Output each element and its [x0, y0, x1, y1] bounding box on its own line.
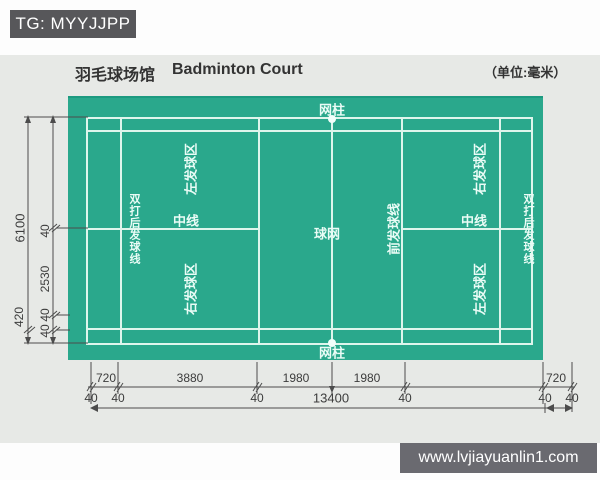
doubles-long-service-line-left: [120, 117, 122, 345]
dim-total-length: 13400: [313, 391, 349, 406]
service-area-label-top-right: 右发球区: [470, 143, 489, 195]
page-title-zh: 羽毛球场馆: [75, 61, 155, 85]
badminton-court: 网柱 网柱 球网 中线 中线 左发球区 右发球区 右发球区 左发球区 双打后发球…: [68, 96, 543, 360]
net-post-label-bottom: 网柱: [319, 343, 345, 362]
short-service-line-left: [258, 117, 260, 345]
dim-line-width-b5: 40: [538, 391, 551, 405]
doubles-long-service-line-right: [499, 117, 501, 345]
service-area-label-top-left: 左发球区: [181, 143, 200, 195]
net-post-label-top: 网柱: [319, 100, 345, 119]
dim-line-width-b6: 40: [565, 391, 578, 405]
dim-side-alley: 420: [12, 307, 26, 327]
page-title-en: Badminton Court: [172, 61, 303, 79]
dim-total-width: 6100: [13, 214, 28, 243]
singles-sideline-bottom: [86, 328, 533, 330]
dim-line-width-left-1: 40: [38, 308, 52, 321]
dim-line-width-b1: 40: [84, 391, 97, 405]
center-line-label-left: 中线: [173, 211, 199, 230]
unit-note: （单位:毫米）: [484, 62, 566, 81]
dim-short-to-net-left: 1980: [283, 371, 310, 385]
dim-long-to-short: 3880: [177, 371, 204, 385]
service-area-label-bottom-right: 左发球区: [470, 263, 489, 315]
boundary-line-bottom: [86, 343, 533, 345]
boundary-line-top: [86, 117, 533, 119]
singles-sideline-top: [86, 130, 533, 132]
short-service-label: 前发球线: [384, 203, 403, 255]
dim-line-width-b4: 40: [398, 391, 411, 405]
dim-line-width-left-2: 40: [38, 324, 52, 337]
watermark-badge: TG: MYYJJPP: [10, 10, 136, 38]
service-area-label-bottom-left: 右发球区: [181, 263, 200, 315]
doubles-long-service-label-right: 双打后发球线: [520, 193, 536, 265]
center-line-label-right: 中线: [461, 211, 487, 230]
website-watermark: www.lvjiayuanlin1.com: [400, 443, 597, 473]
dim-service-court-width: 2530: [38, 266, 52, 293]
dim-back-alley-right: 720: [546, 371, 566, 385]
net-label: 球网: [314, 224, 340, 243]
boundary-line-left: [86, 117, 88, 345]
dim-back-alley-left: 720: [96, 371, 116, 385]
dim-center-line-width: 40: [38, 224, 52, 237]
dim-line-width-b2: 40: [111, 391, 124, 405]
dim-short-to-net-right: 1980: [354, 371, 381, 385]
doubles-long-service-label-left: 双打后发球线: [126, 193, 142, 265]
dim-line-width-b3: 40: [250, 391, 263, 405]
